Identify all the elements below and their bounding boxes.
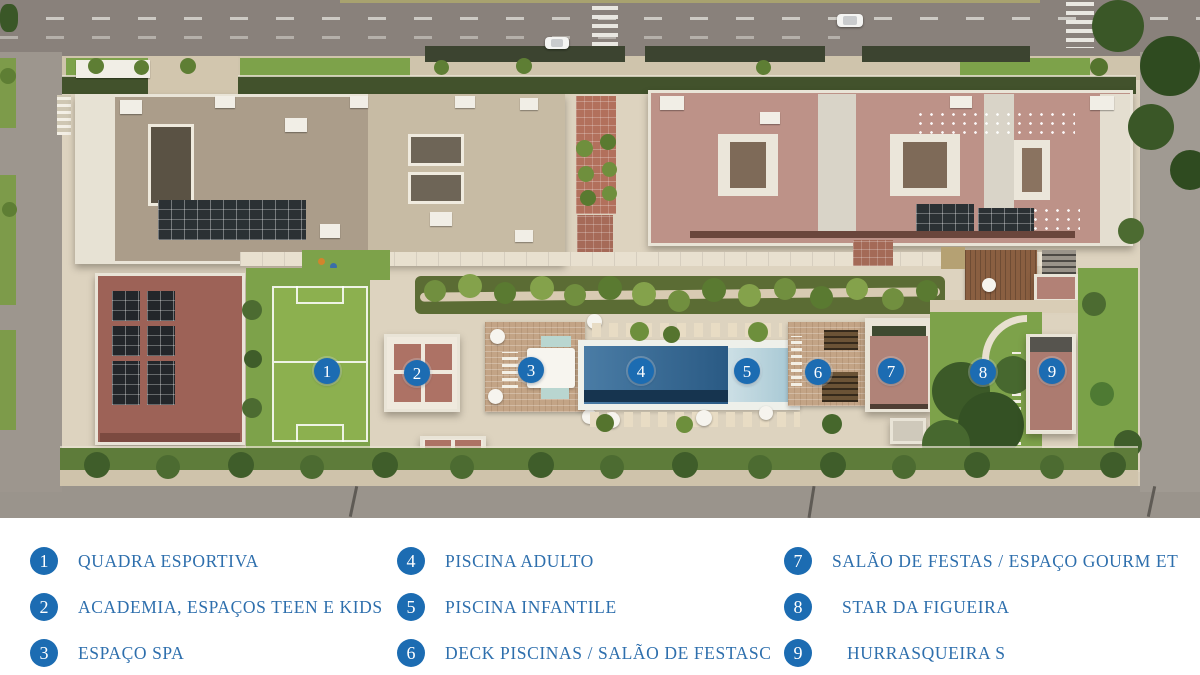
legend: 1 QUADRA ESPORTIVA 2 ACADEMIA, ESPAÇOS T…	[0, 518, 1200, 675]
map-marker-8[interactable]: 8	[970, 359, 996, 385]
hedge-tree	[892, 455, 916, 479]
legend-item-label: PISCINA INFANTILE	[445, 597, 617, 618]
legend-number-badge: 3	[30, 639, 58, 667]
pool-lap-lane	[584, 390, 728, 402]
legend-item-label: HURRASQUEIRA S	[847, 643, 1006, 664]
map-marker-6[interactable]: 6	[805, 359, 831, 385]
legend-number-badge: 6	[397, 639, 425, 667]
car	[545, 37, 569, 49]
roof-structure	[455, 96, 475, 108]
tree-canopy	[564, 284, 586, 306]
map-marker-7[interactable]: 7	[878, 358, 904, 384]
hedge-tree	[300, 455, 324, 479]
roof-courtyard-well	[408, 172, 464, 204]
building-block-left	[75, 94, 565, 264]
hall-roof-edge	[870, 404, 928, 409]
roof-structure	[215, 96, 235, 108]
garden-pavilion-roof	[1034, 274, 1078, 302]
solar-panel	[112, 326, 140, 356]
legend-number-badge: 9	[784, 639, 812, 667]
legend-number-badge: 8	[784, 593, 812, 621]
hedge-tree	[84, 452, 110, 478]
legend-number-badge: 7	[784, 547, 812, 575]
legend-item-9: 9 HURRASQUEIRA S	[784, 639, 1006, 667]
spa-roof-glass	[541, 388, 569, 399]
hall-annex	[890, 418, 926, 444]
road-edge-line	[340, 0, 1040, 3]
hedge-tree	[820, 452, 846, 478]
palm-tree	[1090, 382, 1114, 406]
crosswalk	[592, 6, 618, 50]
roof-white-wing	[75, 94, 115, 264]
tree-canopy	[748, 322, 768, 342]
umbrella	[488, 389, 503, 404]
legend-number-badge: 2	[30, 593, 58, 621]
solar-panel	[147, 291, 175, 321]
tree-canopy	[580, 190, 596, 206]
solar-panel	[112, 291, 140, 321]
roof-structure	[950, 96, 972, 108]
tree-canopy	[632, 282, 656, 306]
hedge-tree	[1040, 455, 1064, 479]
courtyard-interior	[730, 142, 766, 188]
roof-courtyard-well	[408, 134, 464, 166]
legend-item-1: 1 QUADRA ESPORTIVA	[30, 547, 259, 575]
courtyard-interior	[903, 142, 947, 188]
balcony-roof	[853, 240, 893, 266]
solar-panel	[147, 326, 175, 356]
legend-item-7: 7 SALÃO DE FESTAS / ESPAÇO GOURM ET	[784, 547, 1178, 575]
umbrella	[490, 329, 505, 344]
hedge-tree	[672, 452, 698, 478]
street-tree	[1128, 104, 1174, 150]
street-tree	[88, 58, 104, 74]
legend-item-label: SALÃO DE FESTAS / ESPAÇO GOURM ET	[832, 551, 1178, 572]
street-tree	[756, 60, 771, 75]
map-marker-2[interactable]: 2	[404, 360, 430, 386]
roof-structure	[515, 230, 533, 242]
fence-line	[60, 446, 1138, 448]
tree-canopy	[663, 326, 680, 343]
map-marker-9[interactable]: 9	[1039, 358, 1065, 384]
tree-canopy	[598, 276, 622, 300]
tree-canopy	[242, 398, 262, 418]
legend-item-label: QUADRA ESPORTIVA	[78, 551, 259, 572]
legend-item-label: ACADEMIA, ESPAÇOS TEEN E KIDS	[78, 597, 383, 618]
tree-canopy	[600, 134, 616, 150]
umbrella	[696, 410, 712, 426]
tree-canopy	[810, 286, 833, 309]
roof-courtyard-dark	[148, 124, 194, 206]
hedge-tree	[372, 452, 398, 478]
umbrella	[982, 278, 996, 292]
tree-canopy	[1118, 218, 1144, 244]
tree-canopy	[774, 278, 796, 300]
courtyard-interior	[1022, 148, 1042, 192]
building-block-right	[648, 90, 1133, 246]
roof-structure	[430, 212, 452, 226]
tree-canopy	[668, 290, 690, 312]
street-tree	[0, 68, 16, 84]
legend-item-label: PISCINA ADULTO	[445, 551, 594, 572]
verge-grass	[240, 58, 410, 76]
legend-item-8: 8 STAR DA FIGUEIRA	[784, 593, 1010, 621]
roof-paver-dots	[1030, 206, 1080, 232]
map-marker-5[interactable]: 5	[734, 358, 760, 384]
hedge-tree	[600, 455, 624, 479]
solar-panel	[112, 361, 140, 405]
map-marker-4[interactable]: 4	[628, 358, 654, 384]
tree-canopy	[1082, 292, 1106, 316]
legend-number-badge: 1	[30, 547, 58, 575]
hedge-tree	[964, 452, 990, 478]
street-tree	[1140, 36, 1200, 96]
spa-roof-glass	[541, 336, 571, 347]
roof-courtyard	[718, 134, 778, 196]
roof-light-tower	[368, 94, 565, 264]
roof-structure	[320, 224, 340, 238]
lane-dashes	[0, 36, 840, 39]
hall-pergola-green	[872, 326, 926, 336]
site-plan-page: 1 2 3 4 5 6 7 8 9 1 QUADRA ESPORTIVA 2 A…	[0, 0, 1200, 675]
deck-loungers	[791, 336, 802, 386]
street-tree	[180, 58, 196, 74]
legend-number-badge: 4	[397, 547, 425, 575]
legend-item-5: 5 PISCINA INFANTILE	[397, 593, 617, 621]
roof-courtyard	[1014, 140, 1050, 200]
map-marker-3[interactable]: 3	[518, 357, 544, 383]
street-tree	[1090, 58, 1108, 76]
tree-canopy	[576, 140, 593, 157]
tree-canopy	[602, 162, 617, 177]
street-hedge	[862, 46, 1030, 62]
roof-structure	[760, 112, 780, 124]
gym-roof-quad	[425, 344, 452, 370]
legend-item-label: DECK PISCINAS / SALÃO DE FESTASC	[445, 643, 772, 664]
adult-pool	[584, 346, 728, 404]
pergola	[824, 330, 858, 350]
hedge-tree	[228, 452, 254, 478]
tree-canopy	[596, 414, 614, 432]
umbrella	[759, 406, 773, 420]
tree-canopy	[676, 416, 693, 433]
tree-canopy	[424, 280, 446, 302]
roof-eave-shadow	[690, 231, 1075, 238]
street-tree	[516, 58, 532, 74]
roof-core-tower	[818, 94, 856, 234]
spa-loungers	[502, 352, 518, 388]
tree-canopy	[458, 274, 482, 298]
roadside-grass	[0, 175, 16, 305]
street-tree	[134, 60, 149, 75]
solar-panels	[916, 204, 974, 234]
legend-item-3: 3 ESPAÇO SPA	[30, 639, 184, 667]
map-marker-1[interactable]: 1	[314, 358, 340, 384]
goal-box	[296, 424, 344, 442]
louver-panel	[57, 95, 71, 135]
roof-structure	[120, 100, 142, 114]
legend-item-label: ESPAÇO SPA	[78, 643, 184, 664]
crosswalk	[1066, 2, 1094, 48]
tree-canopy	[530, 276, 554, 300]
legend-item-label: STAR DA FIGUEIRA	[842, 597, 1010, 618]
aerial-photo: 1 2 3 4 5 6 7 8 9	[0, 0, 1200, 518]
legend-number-badge: 5	[397, 593, 425, 621]
goal-box	[296, 286, 344, 304]
roof-courtyard	[890, 134, 960, 196]
tree-canopy	[494, 282, 516, 304]
hedge-tree	[528, 452, 554, 478]
hedge-tree	[748, 455, 772, 479]
solar-panel	[147, 361, 175, 405]
car	[837, 14, 863, 27]
roof-structure	[1090, 96, 1114, 110]
street-tree	[1092, 0, 1144, 52]
legend-item-2: 2 ACADEMIA, ESPAÇOS TEEN E KIDS	[30, 593, 383, 621]
roof-paver-dots	[915, 110, 1075, 134]
tree-canopy	[702, 278, 726, 302]
roof-structure	[350, 96, 368, 108]
play-equipment	[318, 258, 325, 265]
annex-building-roof	[95, 273, 245, 445]
roof-structure	[660, 96, 684, 110]
tree-canopy	[882, 288, 904, 310]
street-tree	[0, 4, 18, 32]
hedge-tree	[450, 455, 474, 479]
roadside-grass	[0, 330, 16, 430]
roof-structure	[285, 118, 307, 132]
tree-canopy	[630, 322, 649, 341]
tree-canopy	[242, 300, 262, 320]
tree-canopy	[916, 280, 938, 302]
pergola	[1042, 250, 1076, 274]
wooden-deck	[965, 250, 1037, 302]
tree-canopy	[578, 166, 594, 182]
tree-canopy	[244, 350, 262, 368]
tree-canopy	[738, 284, 761, 307]
gym-roof-quad	[425, 374, 452, 402]
tree-canopy	[602, 186, 617, 201]
bbq-roof-dark	[1030, 337, 1072, 352]
legend-item-4: 4 PISCINA ADULTO	[397, 547, 594, 575]
street-tree	[434, 60, 449, 75]
legend-item-6: 6 DECK PISCINAS / SALÃO DE FESTASC	[397, 639, 772, 667]
hedge-tree	[156, 455, 180, 479]
street-hedge	[645, 46, 825, 62]
hedge-tree	[1100, 452, 1126, 478]
garden-structure	[941, 247, 965, 269]
solar-panels	[158, 200, 306, 240]
bbq-building	[1026, 334, 1076, 434]
tree-canopy	[846, 278, 868, 300]
roof-edge	[100, 433, 240, 442]
bottom-road	[0, 486, 1200, 518]
roof-structure	[520, 98, 538, 110]
palm-tree	[822, 414, 842, 434]
street-tree	[2, 202, 17, 217]
